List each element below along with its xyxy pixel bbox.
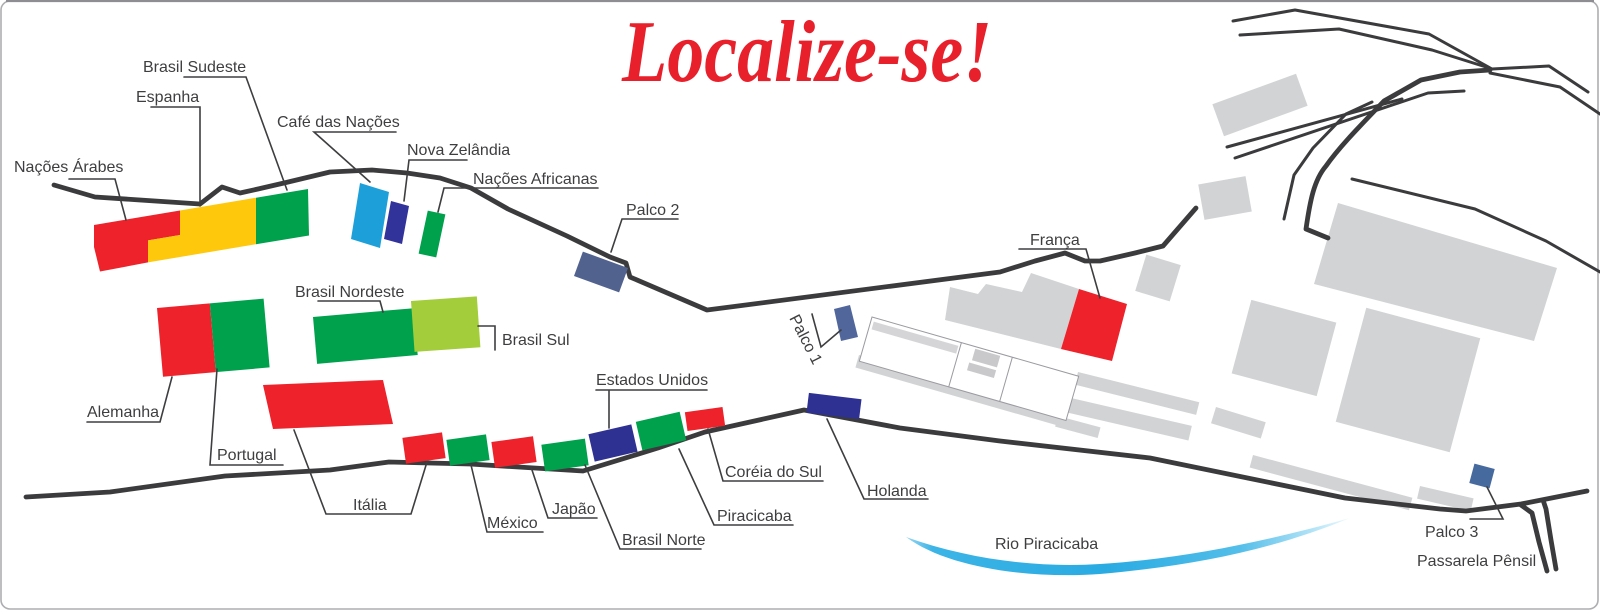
svg-text:Espanha: Espanha: [136, 89, 199, 106]
svg-text:Brasil Norte: Brasil Norte: [622, 532, 706, 549]
svg-text:Palco 3: Palco 3: [1425, 524, 1478, 541]
svg-text:Holanda: Holanda: [867, 483, 927, 500]
svg-text:Coréia do Sul: Coréia do Sul: [725, 464, 822, 481]
svg-text:Passarela Pênsil: Passarela Pênsil: [1417, 553, 1536, 570]
svg-text:Estados Unidos: Estados Unidos: [596, 372, 708, 389]
svg-text:Piracicaba: Piracicaba: [717, 508, 792, 525]
svg-text:Café das Nações: Café das Nações: [277, 114, 400, 131]
svg-text:Brasil Nordeste: Brasil Nordeste: [295, 284, 404, 301]
svg-text:França: França: [1030, 232, 1080, 249]
svg-text:Nações Africanas: Nações Africanas: [473, 171, 598, 188]
svg-text:Palco 2: Palco 2: [626, 202, 679, 219]
svg-text:Rio Piracicaba: Rio Piracicaba: [995, 536, 1098, 553]
svg-text:Brasil Sudeste: Brasil Sudeste: [143, 59, 246, 76]
svg-text:Japão: Japão: [552, 501, 596, 518]
svg-text:Alemanha: Alemanha: [87, 404, 159, 421]
svg-text:Nações Árabes: Nações Árabes: [14, 157, 123, 176]
svg-text:Portugal: Portugal: [217, 447, 277, 464]
svg-text:Nova Zelândia: Nova Zelândia: [407, 142, 510, 159]
svg-text:Localize-se!: Localize-se!: [621, 4, 992, 101]
svg-text:Itália: Itália: [353, 497, 387, 514]
svg-text:México: México: [487, 515, 538, 532]
svg-text:Brasil Sul: Brasil Sul: [502, 332, 570, 349]
